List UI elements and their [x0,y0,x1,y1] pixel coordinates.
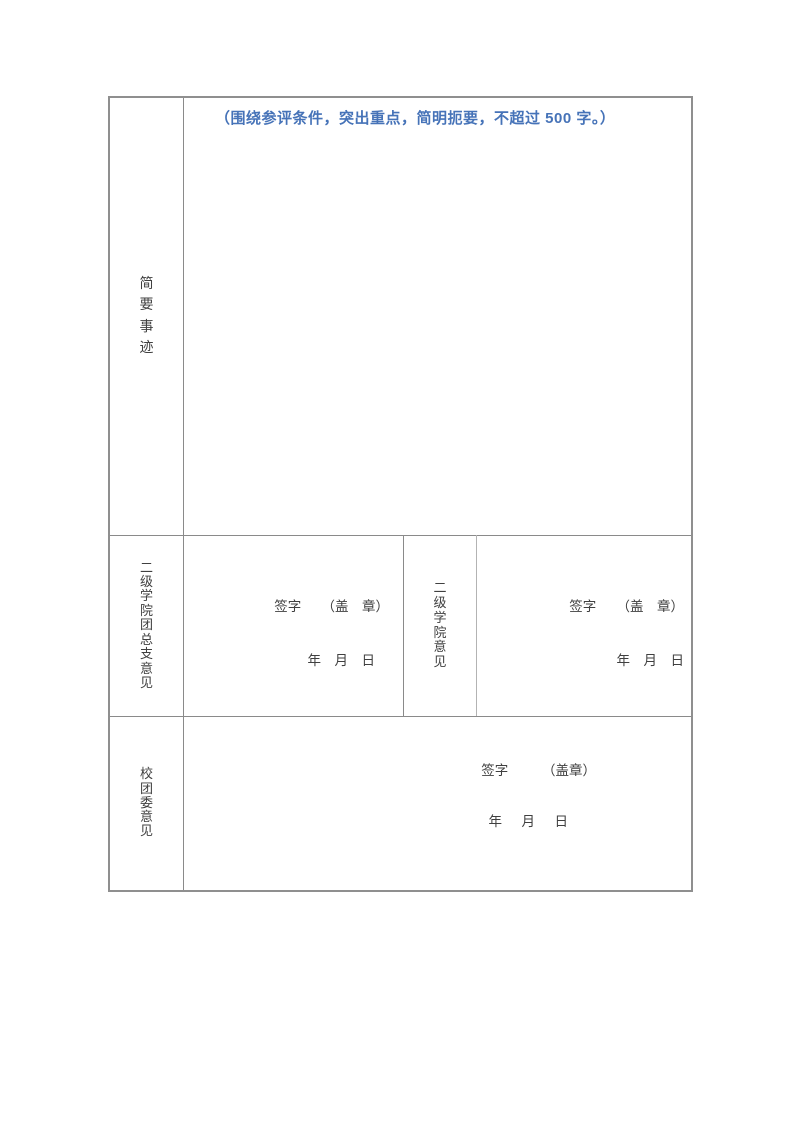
date-line: 年 月 日 [274,652,375,670]
league-branch-opinion-area[interactable]: 签字 （盖 章） 年 月 日 [183,535,403,716]
date-line: 年 月 日 [481,813,571,830]
date-line: 年 月 日 [569,652,684,670]
college-opinion-label-cell: 二级学院意见 [404,535,476,716]
brief-deeds-input-area[interactable]: （围绕参评条件，突出重点，简明扼要，不超过 500 字。） [183,98,691,535]
school-committee-label: 校团委意见 [140,767,153,838]
school-committee-opinion-area[interactable]: 签字 （盖章） 年 月 日 [183,716,691,890]
college-opinion-area[interactable]: 签字 （盖 章） 年 月 日 [477,535,691,716]
college-signature-block: 签字 （盖 章） 年 月 日 [569,562,684,706]
form-page: 简要事迹 （围绕参评条件，突出重点，简明扼要，不超过 500 字。） 二级学院团… [0,0,793,1122]
league-branch-label: 二级学院团总支意见 [140,561,153,691]
brief-deeds-label: 简要事迹 [140,274,154,360]
signature-stamp-line: 签字 （盖章） [481,762,596,779]
signature-stamp-line: 签字 （盖 章） [569,598,684,616]
school-committee-signature-block: 签字 （盖章） 年 月 日 [481,728,596,864]
word-limit-instruction: （围绕参评条件，突出重点，简明扼要，不超过 500 字。） [215,107,681,128]
award-evaluation-form-table: 简要事迹 （围绕参评条件，突出重点，简明扼要，不超过 500 字。） 二级学院团… [108,96,693,892]
league-branch-signature-block: 签字 （盖 章） 年 月 日 [274,562,389,706]
college-opinion-label: 二级学院意见 [433,581,446,670]
school-committee-label-cell: 校团委意见 [110,716,183,890]
league-branch-label-cell: 二级学院团总支意见 [110,535,183,716]
brief-deeds-label-cell: 简要事迹 [110,98,183,535]
signature-stamp-line: 签字 （盖 章） [274,598,389,616]
